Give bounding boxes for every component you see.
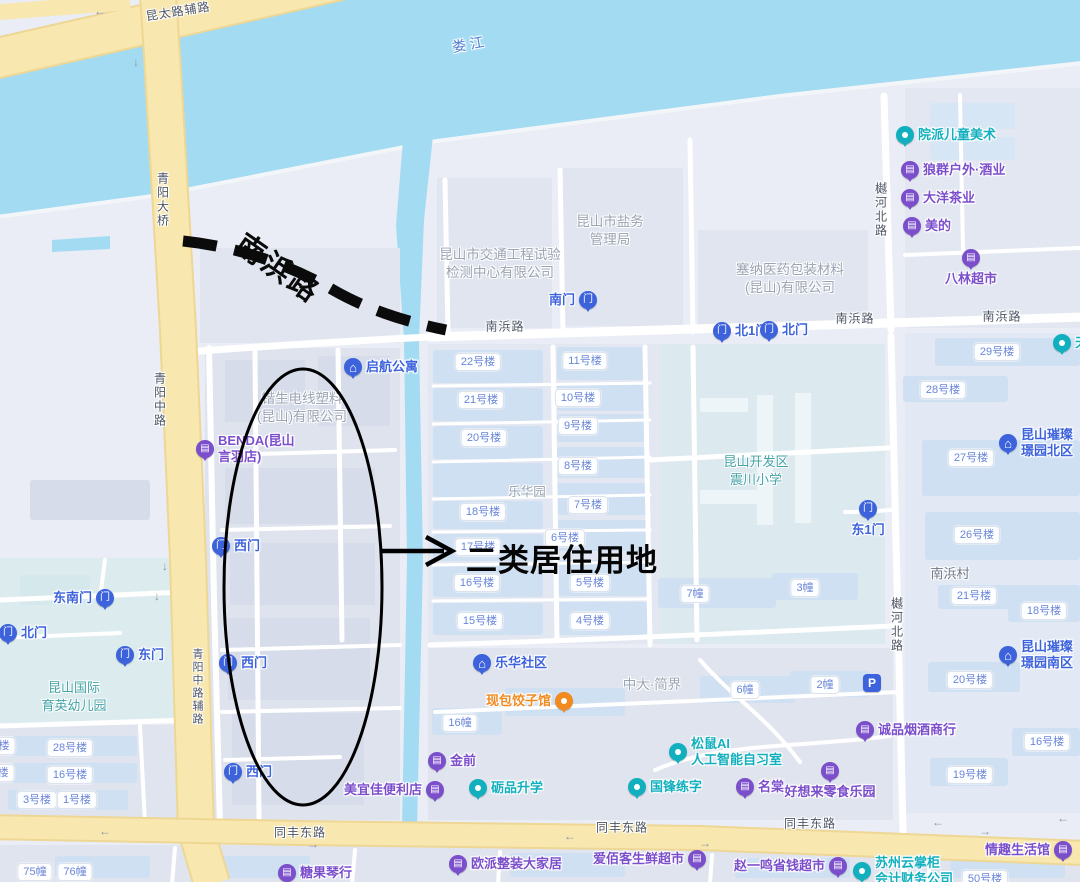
map-canvas[interactable]: 昆太路辅路娄江青阳大桥青阳中路青阳中路辅路南浜路南浜路南浜路樾河北路樾河北路同丰… <box>0 0 1080 882</box>
annotation-road-name: 南浜路 <box>228 222 331 311</box>
annotation-callout-text: 二类居住用地 <box>466 535 658 580</box>
annotation-text-layer: 南浜路 二类居住用地 <box>0 0 1080 882</box>
